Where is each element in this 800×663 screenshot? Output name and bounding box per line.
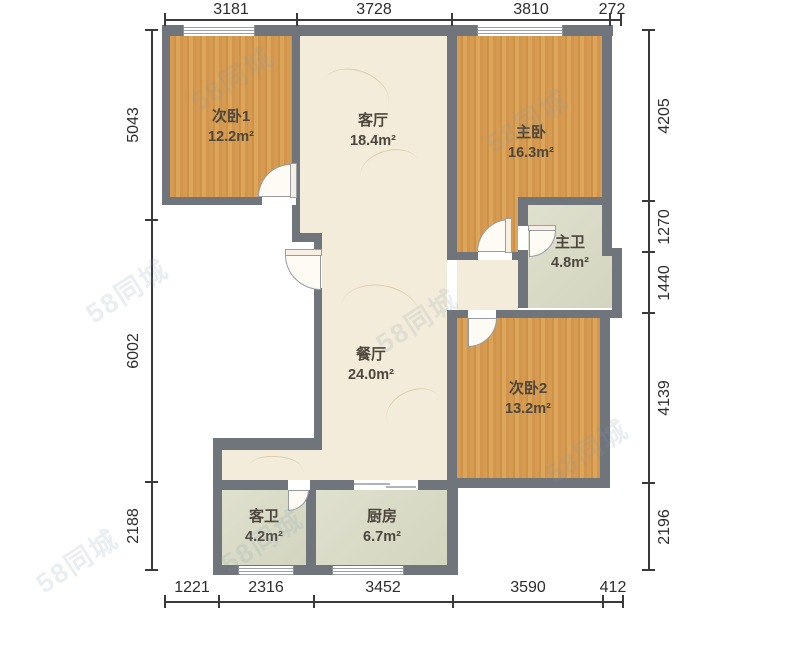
dim-tick xyxy=(452,595,454,608)
wall xyxy=(518,197,602,205)
room-name: 厨房 xyxy=(363,506,401,527)
room-name: 主卫 xyxy=(551,232,589,253)
dim-tick xyxy=(145,481,158,483)
floor-nook xyxy=(457,260,518,310)
label-second-bedroom-2: 次卧2 13.2m² xyxy=(505,378,551,419)
dim-tick xyxy=(642,200,655,202)
door-leaf-second-bedroom-1 xyxy=(290,163,297,198)
label-kitchen: 厨房 6.7m² xyxy=(363,506,401,547)
wall xyxy=(447,480,458,575)
room-area: 6.7m² xyxy=(363,527,401,547)
floor-plan: 次卧1 12.2m² 客厅 18.4m² 主卧 16.3m² 主卫 4.8m² … xyxy=(0,0,800,663)
dim-tick xyxy=(642,251,655,253)
window-kitchen xyxy=(332,566,404,575)
dim-tick xyxy=(164,595,166,608)
dim-label-top: 272 xyxy=(599,1,626,19)
wall xyxy=(447,36,457,260)
dim-line-top xyxy=(165,19,622,21)
watermark: 58同城 xyxy=(77,248,175,331)
door-arc-entrance xyxy=(285,255,321,290)
wall xyxy=(213,438,322,450)
dim-label-bottom: 1221 xyxy=(174,579,210,597)
dim-line-right xyxy=(648,30,650,571)
wall xyxy=(314,288,322,440)
window-second-bedroom-1 xyxy=(183,25,255,36)
door-opening xyxy=(288,480,310,490)
dim-tick xyxy=(642,569,655,571)
door-opening xyxy=(518,226,528,250)
dim-label-right: 2196 xyxy=(656,509,674,545)
wall xyxy=(213,480,458,490)
sliding-door-panel xyxy=(354,483,390,485)
door-opening xyxy=(262,197,296,205)
wall xyxy=(162,25,170,205)
dim-label-bottom: 3452 xyxy=(365,579,401,597)
room-area: 12.2m² xyxy=(208,127,254,147)
wall xyxy=(447,478,610,488)
room-area: 18.4m² xyxy=(350,131,396,151)
dim-tick xyxy=(642,29,655,31)
dim-tick xyxy=(642,482,655,484)
watermark: 58同城 xyxy=(27,518,125,601)
dim-label-top: 3181 xyxy=(213,1,249,19)
dim-tick xyxy=(145,569,158,571)
window-master-bedroom xyxy=(477,25,563,36)
wall xyxy=(447,310,457,480)
dim-label-right: 4205 xyxy=(656,98,674,134)
label-second-bedroom-1: 次卧1 12.2m² xyxy=(208,106,254,147)
wall xyxy=(612,248,622,318)
kitchen-sliding-opening xyxy=(354,480,418,490)
dim-tick xyxy=(296,13,298,26)
room-area: 4.8m² xyxy=(551,253,589,273)
dim-line-left xyxy=(151,30,153,571)
dim-tick xyxy=(313,595,315,608)
wall xyxy=(518,197,528,308)
dim-label-top: 3728 xyxy=(356,1,392,19)
dim-tick xyxy=(218,595,220,608)
dim-tick xyxy=(164,13,166,26)
dim-label-left: 2188 xyxy=(125,508,143,544)
dim-tick xyxy=(642,312,655,314)
door-opening xyxy=(468,310,496,318)
label-master-bathroom: 主卫 4.8m² xyxy=(551,232,589,273)
dim-label-left: 6002 xyxy=(125,333,143,369)
dim-label-bottom: 2316 xyxy=(248,579,284,597)
sliding-door-panel xyxy=(386,486,416,488)
label-living-room: 客厅 18.4m² xyxy=(350,110,396,151)
dim-label-bottom: 3590 xyxy=(510,579,546,597)
dim-line-bottom xyxy=(165,601,624,603)
room-name: 客厅 xyxy=(350,110,396,131)
dim-label-top: 3810 xyxy=(513,1,549,19)
room-area: 24.0m² xyxy=(348,365,394,385)
door-leaf-master-bedroom xyxy=(505,218,512,253)
dim-label-bottom: 412 xyxy=(600,579,627,597)
wall xyxy=(292,233,322,242)
dim-label-left: 5043 xyxy=(125,107,143,143)
wall xyxy=(602,25,612,252)
dim-label-right: 4139 xyxy=(656,380,674,416)
dim-tick xyxy=(451,13,453,26)
door-opening xyxy=(478,252,512,260)
dim-tick xyxy=(145,29,158,31)
dim-label-right: 1270 xyxy=(656,209,674,245)
room-area: 13.2m² xyxy=(505,399,551,419)
room-name: 次卧2 xyxy=(505,378,551,399)
dim-tick xyxy=(145,219,158,221)
dim-label-right: 1440 xyxy=(656,265,674,301)
